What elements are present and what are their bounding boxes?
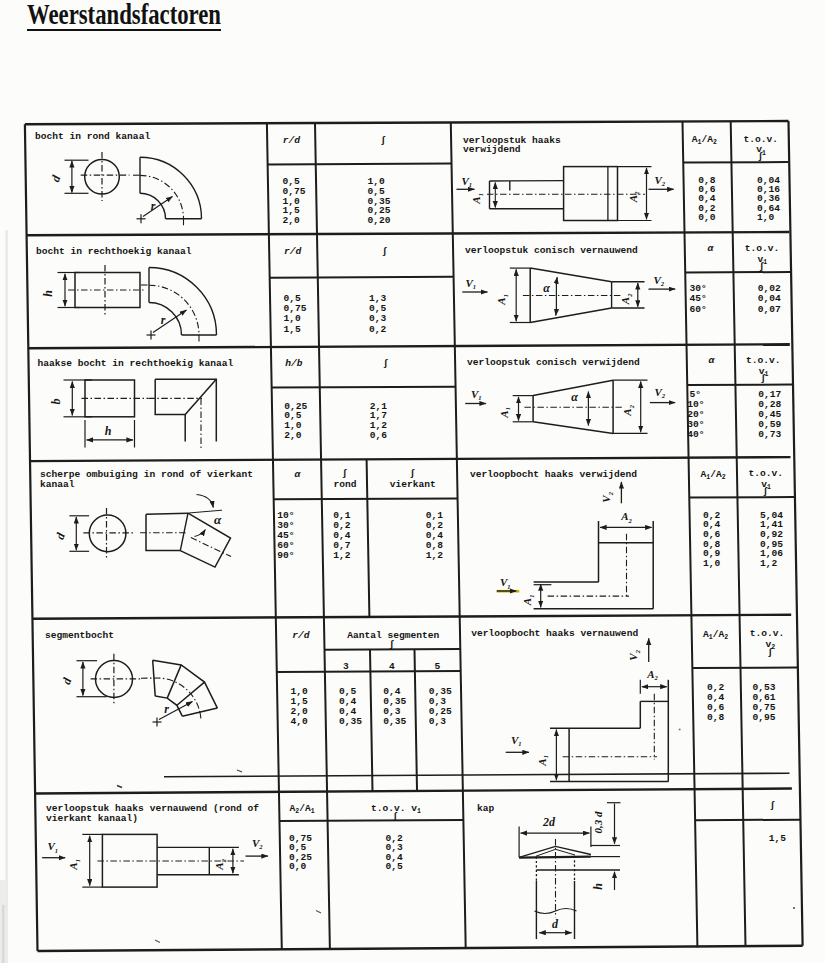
svg-text:Weerstandsfactoren: Weerstandsfactoren (27, 0, 221, 30)
svg-text:∫: ∫ (759, 261, 765, 272)
svg-text:1,2: 1,2 (426, 550, 444, 561)
svg-text:∫: ∫ (410, 468, 416, 479)
svg-text:∫: ∫ (389, 639, 395, 650)
svg-text:verloopstuk conisch vernauwend: verloopstuk conisch vernauwend (465, 245, 638, 256)
svg-text:90°: 90° (277, 550, 294, 561)
svg-text:b: b (50, 398, 64, 404)
svg-text:segmentbocht: segmentbocht (45, 630, 114, 641)
svg-text:h: h (592, 883, 606, 890)
svg-text:verloopbocht haaks vernauwend: verloopbocht haaks vernauwend (471, 628, 638, 639)
svg-text:r: r (164, 702, 169, 716)
svg-text:0,2: 0,2 (369, 324, 387, 335)
svg-text:h: h (105, 424, 112, 438)
svg-text:0,6: 0,6 (370, 430, 388, 441)
svg-text:2,0: 2,0 (282, 215, 300, 226)
svg-text:r: r (161, 313, 166, 327)
svg-text:0,3 d: 0,3 d (593, 811, 605, 834)
svg-text:r/d: r/d (292, 630, 310, 641)
svg-text:vierkant kanaal): vierkant kanaal) (46, 813, 138, 824)
svg-text:∫: ∫ (758, 151, 764, 162)
svg-text:r: r (151, 199, 156, 213)
svg-text:0,07: 0,07 (758, 304, 781, 315)
svg-text:∫: ∫ (342, 468, 348, 479)
svg-text:verloopbocht haaks verwijdend: verloopbocht haaks verwijdend (470, 469, 637, 480)
svg-text:bocht in rechthoekig kanaal: bocht in rechthoekig kanaal (36, 246, 192, 257)
svg-text:h/b: h/b (285, 358, 303, 369)
svg-text:t.o.v.: t.o.v. (743, 134, 778, 145)
svg-text:r/d: r/d (284, 246, 302, 257)
svg-text:0,20: 0,20 (368, 215, 391, 226)
svg-text:1,5: 1,5 (283, 324, 301, 335)
svg-text:α: α (543, 281, 550, 295)
svg-text:3: 3 (343, 661, 349, 672)
svg-text:60°: 60° (689, 304, 706, 315)
svg-text:α: α (214, 512, 222, 527)
svg-text:0,95: 0,95 (753, 712, 776, 723)
svg-text:2,0: 2,0 (284, 430, 302, 441)
svg-text:0,0: 0,0 (289, 861, 307, 872)
svg-text:0,3: 0,3 (429, 716, 447, 727)
svg-text:1,2: 1,2 (333, 550, 351, 561)
svg-text:∫: ∫ (383, 358, 389, 369)
svg-text:1,5: 1,5 (769, 833, 787, 844)
svg-text:∫: ∫ (763, 486, 769, 497)
svg-text:∫: ∫ (770, 800, 776, 811)
svg-text:verloopstuk conisch verwijdend: verloopstuk conisch verwijdend (467, 357, 640, 368)
svg-text:∫: ∫ (760, 373, 766, 384)
svg-text:haakse bocht in rechthoekig ka: haakse bocht in rechthoekig kanaal (38, 358, 234, 369)
svg-text:4: 4 (389, 661, 395, 672)
svg-text:∫: ∫ (382, 246, 388, 257)
svg-text:40°: 40° (687, 429, 704, 440)
svg-text:t.o.v.: t.o.v. (748, 468, 783, 479)
svg-text:0,35: 0,35 (339, 716, 362, 727)
svg-text:rond: rond (333, 479, 356, 490)
svg-text:0,35: 0,35 (383, 716, 406, 727)
svg-text:0,0: 0,0 (698, 212, 716, 223)
svg-text:t.o.v.: t.o.v. (745, 243, 780, 254)
svg-text:kap: kap (477, 803, 495, 814)
svg-text:verwijdend: verwijdend (463, 144, 521, 155)
svg-text:t.o.v.: t.o.v. (746, 355, 781, 366)
svg-text:vierkant: vierkant (390, 479, 436, 490)
svg-text:h: h (42, 290, 56, 297)
svg-text:5: 5 (434, 661, 440, 672)
svg-text:1,0: 1,0 (703, 558, 721, 569)
svg-text:0,73: 0,73 (758, 429, 781, 440)
svg-text:∫: ∫ (767, 647, 773, 658)
svg-text:∫: ∫ (393, 811, 399, 822)
svg-text:0,5: 0,5 (386, 861, 404, 872)
svg-text:d: d (552, 917, 559, 931)
svg-text:∫: ∫ (381, 135, 387, 146)
svg-text:α: α (571, 390, 578, 404)
svg-text:1,0: 1,0 (757, 212, 775, 223)
svg-text:2d: 2d (542, 815, 556, 829)
svg-text:bocht in rond kanaal: bocht in rond kanaal (35, 131, 150, 142)
svg-text:1,2: 1,2 (760, 558, 778, 569)
svg-text:kanaal: kanaal (40, 479, 75, 490)
svg-text:r/d: r/d (283, 135, 301, 146)
svg-text:4,0: 4,0 (291, 716, 309, 727)
svg-text:0,8: 0,8 (707, 712, 725, 723)
